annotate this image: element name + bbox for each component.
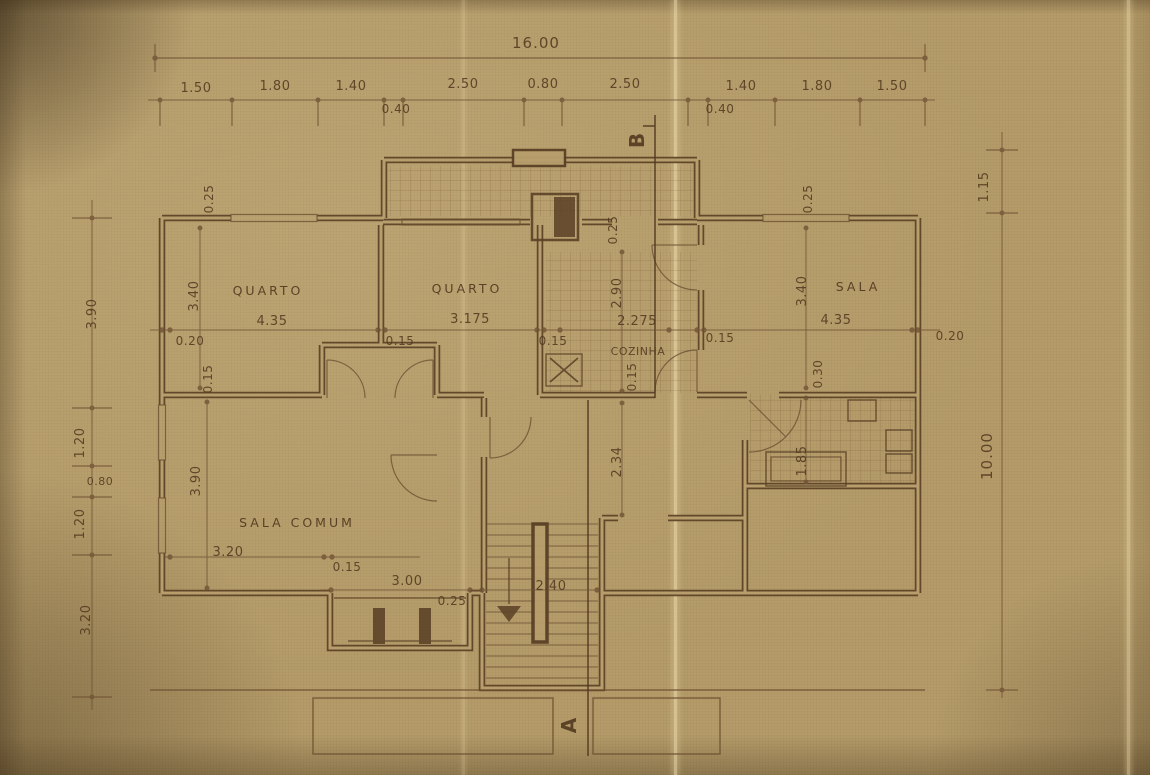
wall-dim-015-c: 0.15 (539, 334, 568, 348)
stair-direction-arrow (497, 606, 521, 622)
window-left-lower (159, 498, 166, 553)
dim-top-8: 1.50 (877, 79, 908, 94)
dim-top-7: 1.80 (802, 79, 833, 94)
room-label-cozinha: COZINHA (611, 345, 666, 358)
section-marker-b: B (625, 132, 649, 148)
dim-bath-height: 1.85 (795, 446, 810, 477)
door-hall (391, 455, 437, 501)
room-label-quarto1: QUARTO (233, 283, 304, 298)
dim-top-5: 2.50 (610, 77, 641, 92)
wall-dim-015-b: 0.15 (386, 334, 415, 348)
porch-left (313, 698, 553, 754)
staircase (486, 524, 598, 678)
dim-top-3: 2.50 (448, 77, 479, 92)
blueprint-paper: 16.00 1.15 10.00 1.50 1.80 1.40 2.50 0.8… (0, 0, 1150, 775)
dim-top-4: 0.80 (528, 77, 559, 92)
floor-plan-drawing: 16.00 1.15 10.00 1.50 1.80 1.40 2.50 0.8… (0, 0, 1150, 775)
dim-cozinha-height: 2.90 (610, 278, 625, 309)
bathroom-tiles (750, 394, 916, 484)
dim-left-2: 0.80 (87, 475, 114, 488)
dim-top-sub-1: 0.40 (706, 102, 735, 116)
wall-dim-030: 0.30 (811, 360, 825, 389)
dim-hall-height: 2.34 (610, 447, 625, 478)
dim-left-3: 1.20 (73, 509, 88, 540)
dim-overall-height: 10.00 (978, 432, 996, 480)
porch-lines (150, 690, 925, 754)
dim-sala-comum-right: 3.00 (392, 574, 423, 589)
dim-quarto1-width: 4.35 (257, 314, 288, 329)
window-left-upper (159, 405, 166, 460)
wall-dim-025-left: 0.25 (202, 185, 216, 214)
wall-dim-020-right: 0.20 (936, 329, 965, 343)
dim-left-4: 3.20 (79, 605, 94, 636)
dim-sala-comum-left: 3.20 (213, 545, 244, 560)
dim-top-1: 1.80 (260, 79, 291, 94)
dim-sala-width: 4.35 (821, 313, 852, 328)
dim-quarto2-width: 3.175 (450, 312, 490, 327)
room-label-quarto2: QUARTO (432, 281, 503, 296)
wall-dim-015-e: 0.15 (706, 331, 735, 345)
balcony-tiles (388, 166, 694, 216)
dim-left-0: 3.90 (85, 299, 100, 330)
dim-top-sub-0: 0.40 (382, 102, 411, 116)
window-quarto1 (231, 215, 317, 222)
dim-sala-height: 3.40 (795, 276, 810, 307)
dim-cozinha-width: 2.275 (617, 314, 657, 329)
wall-dim-015-d: 0.15 (625, 363, 639, 392)
dim-sala-comum-height: 3.90 (189, 466, 204, 497)
wall-dim-025-mid: 0.25 (606, 216, 620, 245)
dim-top-0: 1.50 (181, 81, 212, 96)
dim-top-2: 1.40 (336, 79, 367, 94)
room-label-sala: SALA (836, 279, 881, 294)
wall-dim-015-a: 0.15 (201, 365, 215, 394)
room-label-sala-comum: SALA COMUM (239, 515, 355, 530)
dim-overall-width: 16.00 (512, 34, 560, 52)
balcony-planter (513, 150, 565, 166)
dim-left-1: 1.20 (73, 428, 88, 459)
wall-dim-025-right: 0.25 (801, 185, 815, 214)
dim-stair-width: 2.40 (536, 579, 567, 594)
wall-dim-020-left: 0.20 (176, 334, 205, 348)
wall-dim-025-stair: 0.25 (438, 594, 467, 608)
dim-quarto1-height: 3.40 (187, 281, 202, 312)
door-quarto2 (395, 360, 433, 398)
window-sala (763, 215, 849, 222)
wall-dim-015-f: 0.15 (333, 560, 362, 574)
porch-right (593, 698, 720, 754)
dim-right-upper: 1.15 (977, 172, 992, 203)
dim-top-6: 1.40 (726, 79, 757, 94)
door-quarto1 (327, 360, 365, 398)
door-sala-comum (490, 417, 531, 458)
section-marker-a: A (557, 717, 581, 733)
